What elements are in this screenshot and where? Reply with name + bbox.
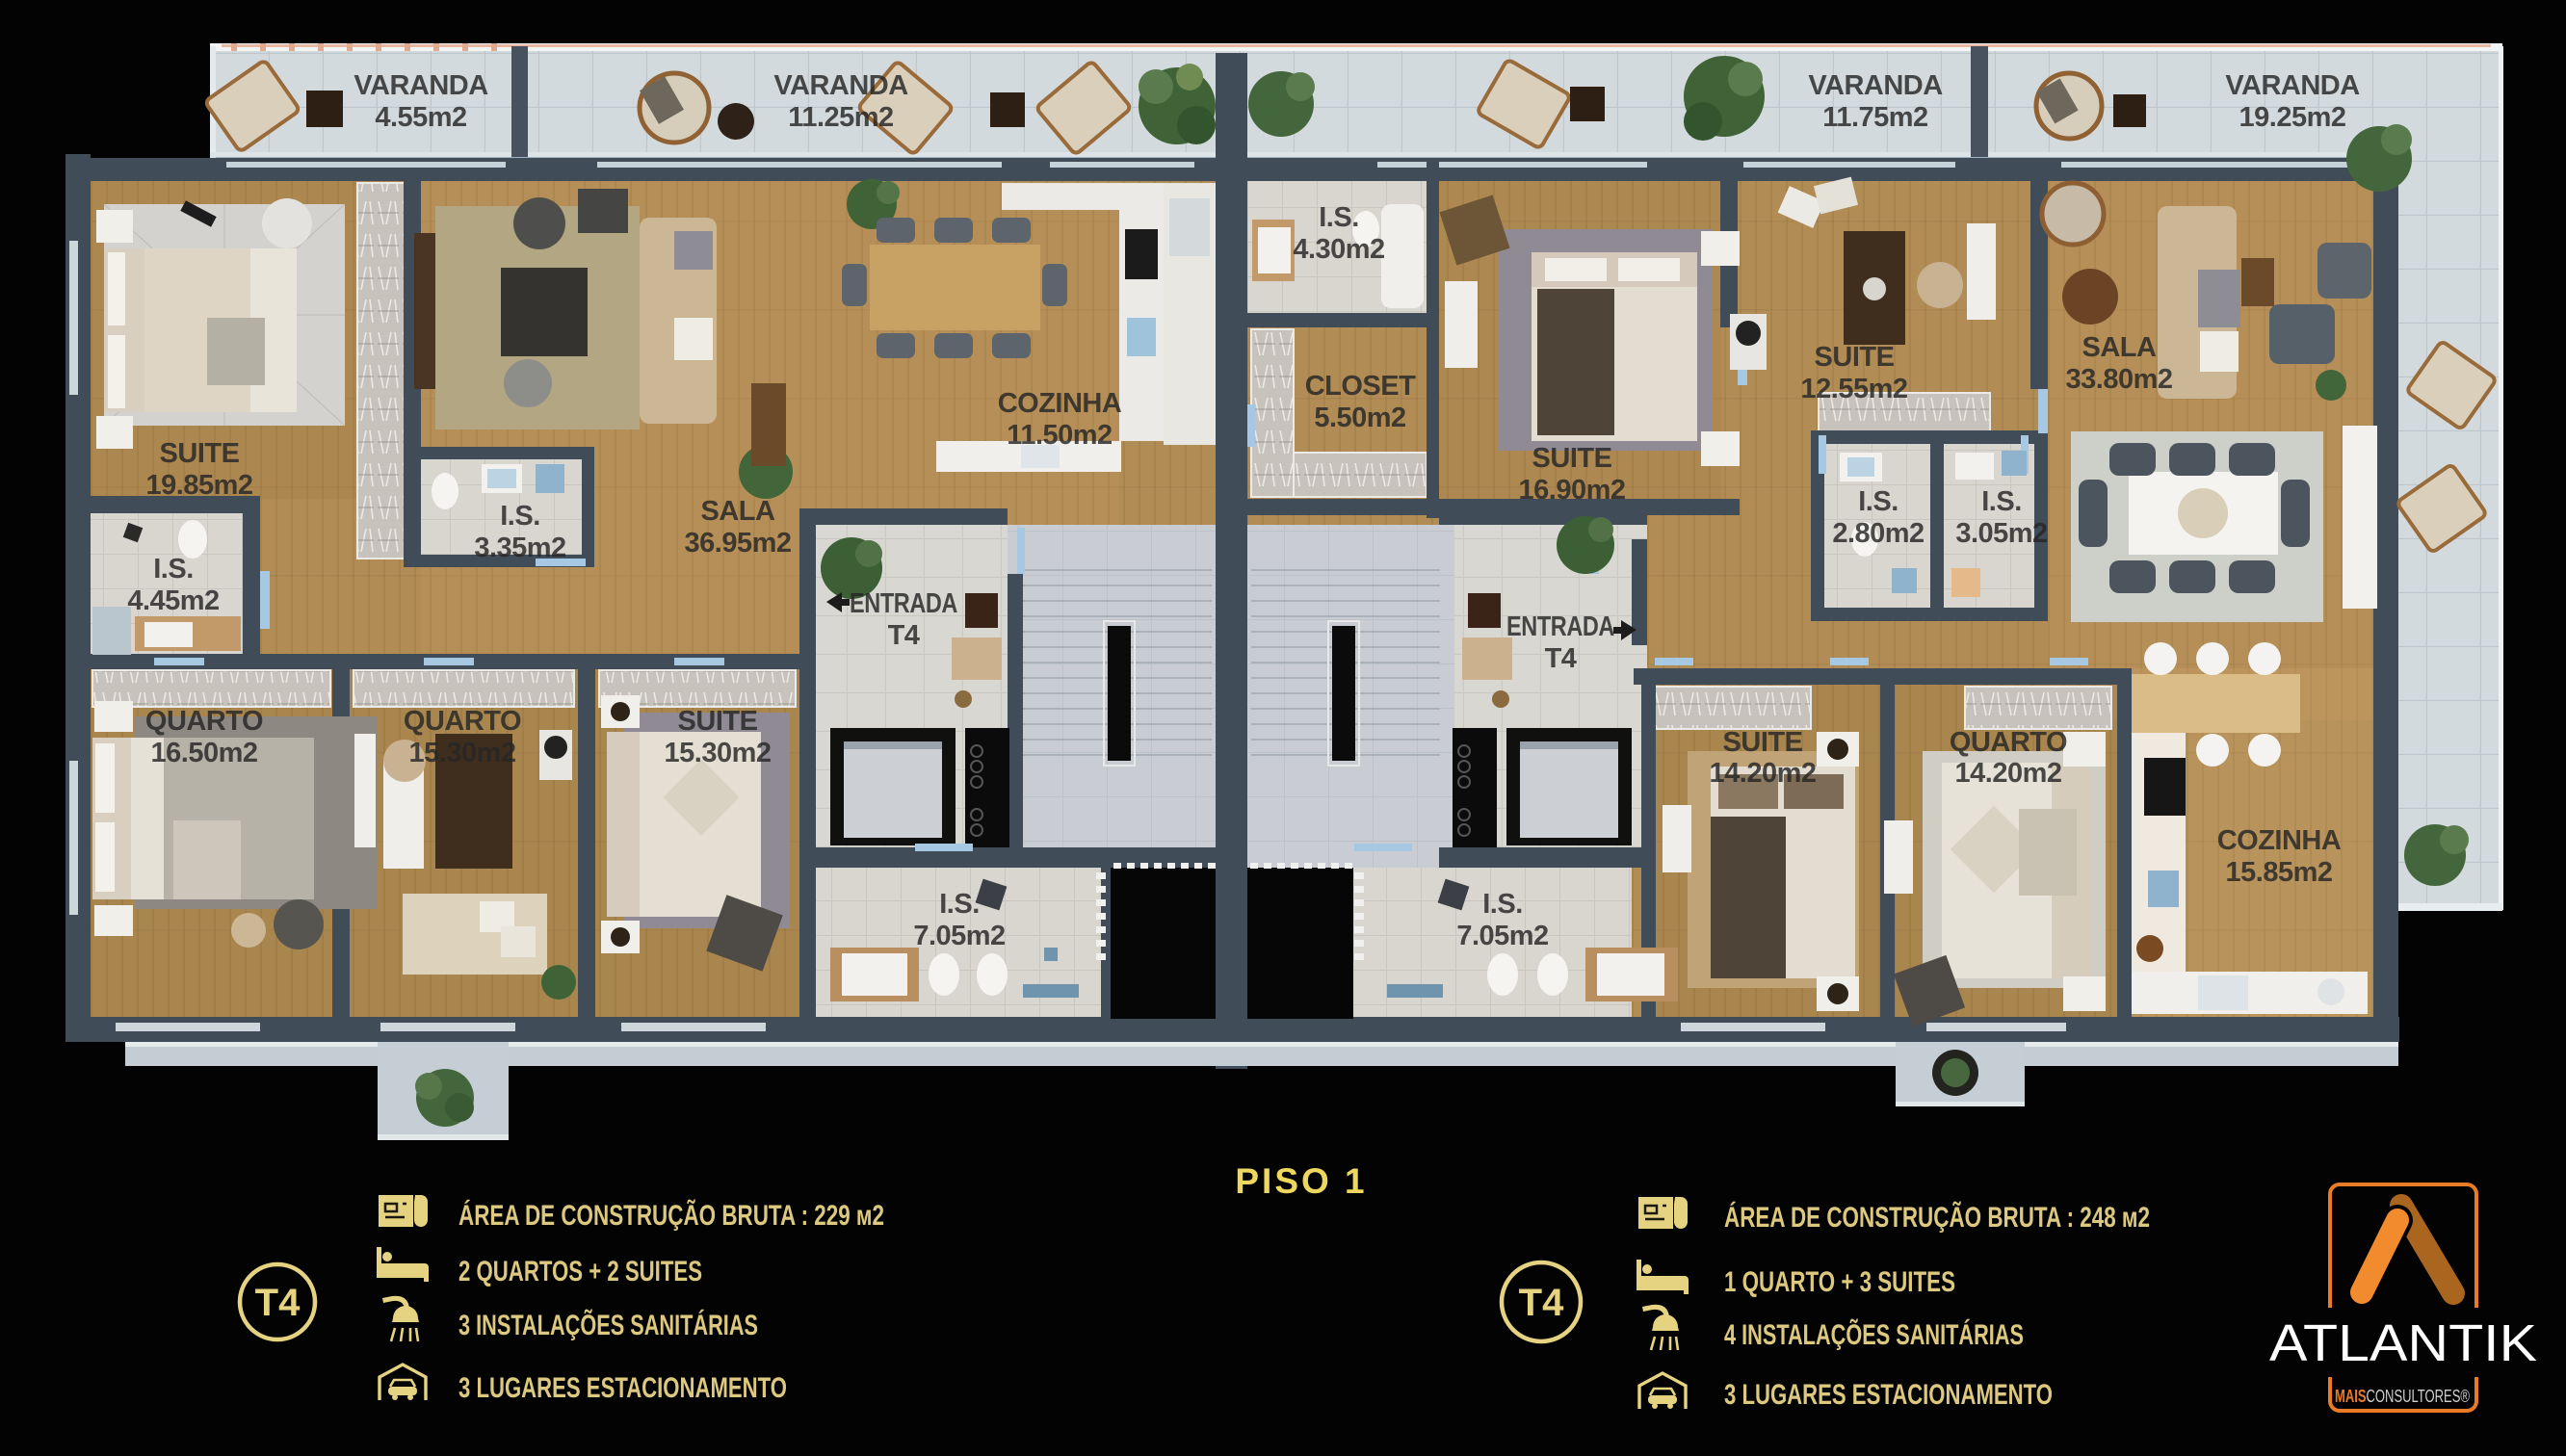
svg-text:ÁREA DE CONSTRUÇÃO BRUTA : 22: ÁREA DE CONSTRUÇÃO BRUTA : 229 м2: [458, 1199, 884, 1232]
svg-text:2 QUARTOS + 2 SUITES: 2 QUARTOS + 2 SUITES: [458, 1256, 702, 1287]
svg-text:4.45m2: 4.45m2: [127, 585, 219, 616]
svg-text:I.S.: I.S.: [153, 554, 194, 585]
svg-text:11.25m2: 11.25m2: [788, 102, 893, 133]
svg-text:3 LUGARES ESTACIONAMENTO: 3 LUGARES ESTACIONAMENTO: [458, 1372, 787, 1404]
svg-text:19.25m2: 19.25m2: [2239, 102, 2346, 133]
svg-text:SALA: SALA: [701, 496, 776, 527]
svg-text:I.S.: I.S.: [1319, 202, 1359, 233]
svg-text:VARANDA: VARANDA: [1808, 70, 1943, 101]
svg-text:4.30m2: 4.30m2: [1293, 234, 1384, 265]
svg-text:SUITE: SUITE: [1532, 443, 1612, 474]
svg-text:I.S.: I.S.: [1981, 486, 2022, 517]
svg-text:16.90m2: 16.90m2: [1519, 475, 1626, 506]
svg-text:PISO 1: PISO 1: [1235, 1161, 1367, 1201]
svg-text:T4: T4: [255, 1282, 301, 1324]
svg-text:SUITE: SUITE: [160, 438, 240, 469]
svg-text:3 INSTALAÇÕES SANITÁRIAS: 3 INSTALAÇÕES SANITÁRIAS: [458, 1309, 758, 1341]
svg-text:36.95m2: 36.95m2: [685, 528, 792, 559]
svg-text:15.85m2: 15.85m2: [2226, 857, 2333, 888]
svg-text:ENTRADA: ENTRADA: [1506, 611, 1614, 642]
svg-text:3.35m2: 3.35m2: [474, 533, 565, 563]
svg-text:MAISCONSULTORES®: MAISCONSULTORES®: [2335, 1387, 2470, 1406]
svg-text:I.S.: I.S.: [1858, 486, 1898, 517]
svg-text:T4: T4: [1519, 1282, 1564, 1324]
svg-text:COZINHA: COZINHA: [998, 388, 1122, 419]
svg-text:33.80m2: 33.80m2: [2066, 364, 2173, 395]
svg-text:COZINHA: COZINHA: [2217, 825, 2342, 856]
svg-text:11.75m2: 11.75m2: [1822, 102, 1927, 133]
svg-text:15.30m2: 15.30m2: [409, 738, 516, 768]
svg-text:CLOSET: CLOSET: [1305, 371, 1416, 402]
svg-text:VARANDA: VARANDA: [2225, 70, 2360, 101]
svg-text:3 LUGARES ESTACIONAMENTO: 3 LUGARES ESTACIONAMENTO: [1724, 1379, 2053, 1411]
svg-text:T4: T4: [1545, 643, 1577, 674]
svg-text:I.S.: I.S.: [500, 501, 540, 532]
svg-text:I.S.: I.S.: [1482, 889, 1523, 920]
svg-text:4.55m2: 4.55m2: [375, 102, 466, 133]
svg-text:2.80m2: 2.80m2: [1832, 518, 1924, 549]
svg-text:15.30m2: 15.30m2: [665, 738, 772, 768]
svg-text:ENTRADA: ENTRADA: [850, 588, 957, 619]
svg-text:4 INSTALAÇÕES SANITÁRIAS: 4 INSTALAÇÕES SANITÁRIAS: [1724, 1318, 2024, 1351]
svg-text:16.50m2: 16.50m2: [151, 738, 258, 768]
svg-text:1 QUARTO + 3 SUITES: 1 QUARTO + 3 SUITES: [1724, 1266, 1955, 1298]
svg-text:3.05m2: 3.05m2: [1955, 518, 2047, 549]
svg-text:I.S.: I.S.: [939, 889, 980, 920]
svg-text:SUITE: SUITE: [1815, 342, 1895, 373]
svg-text:QUARTO: QUARTO: [1950, 727, 2067, 758]
svg-text:7.05m2: 7.05m2: [913, 921, 1005, 951]
svg-text:7.05m2: 7.05m2: [1456, 921, 1548, 951]
svg-text:SUITE: SUITE: [678, 706, 758, 737]
svg-text:ÁREA DE CONSTRUÇÃO BRUTA : 24: ÁREA DE CONSTRUÇÃO BRUTA : 248 м2: [1724, 1201, 2150, 1234]
svg-text:14.20m2: 14.20m2: [1710, 758, 1817, 789]
svg-text:11.50m2: 11.50m2: [1007, 420, 1112, 451]
svg-text:T4: T4: [888, 620, 920, 651]
svg-text:VARANDA: VARANDA: [773, 70, 908, 101]
svg-text:VARANDA: VARANDA: [353, 70, 488, 101]
svg-text:12.55m2: 12.55m2: [1801, 374, 1908, 404]
svg-text:14.20m2: 14.20m2: [1955, 758, 2062, 789]
svg-text:19.85m2: 19.85m2: [146, 470, 253, 501]
svg-text:5.50m2: 5.50m2: [1314, 403, 1405, 433]
svg-text:QUARTO: QUARTO: [145, 706, 263, 737]
svg-text:QUARTO: QUARTO: [404, 706, 521, 737]
svg-text:ATLANTIK: ATLANTIK: [2269, 1314, 2537, 1372]
svg-text:SUITE: SUITE: [1723, 727, 1803, 758]
svg-text:SALA: SALA: [2082, 332, 2158, 363]
